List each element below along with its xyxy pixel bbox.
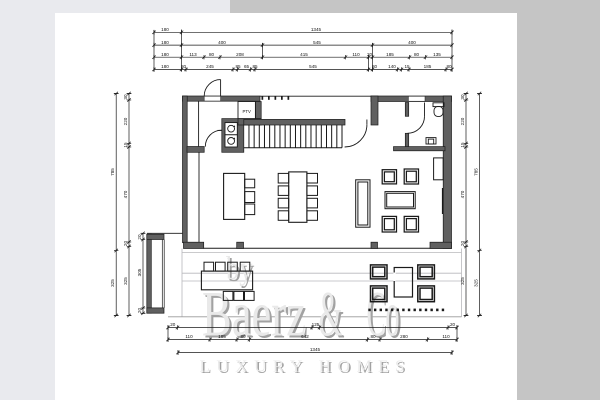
svg-text:85: 85	[235, 64, 241, 69]
svg-text:400: 400	[408, 40, 416, 45]
svg-text:80: 80	[209, 52, 215, 57]
svg-text:110: 110	[352, 52, 360, 57]
svg-text:80: 80	[372, 64, 378, 69]
svg-text:80: 80	[446, 64, 452, 69]
svg-text:80: 80	[370, 334, 376, 339]
svg-text:113: 113	[189, 52, 197, 57]
svg-text:15: 15	[123, 142, 128, 148]
svg-text:642: 642	[301, 334, 309, 339]
svg-text:80: 80	[240, 334, 246, 339]
svg-text:305: 305	[137, 268, 142, 276]
svg-text:415: 415	[300, 52, 308, 57]
svg-text:80: 80	[181, 64, 187, 69]
svg-text:785: 785	[110, 168, 115, 176]
svg-text:208: 208	[236, 52, 244, 57]
svg-text:20: 20	[450, 322, 456, 327]
svg-text:110: 110	[185, 334, 193, 339]
svg-text:20: 20	[137, 234, 142, 240]
svg-text:180: 180	[161, 27, 169, 32]
svg-text:325: 325	[123, 277, 128, 285]
svg-text:280: 280	[400, 334, 408, 339]
svg-text:PTV: PTV	[243, 109, 251, 114]
svg-text:180: 180	[161, 40, 169, 45]
svg-text:30: 30	[460, 94, 465, 100]
svg-text:85: 85	[252, 64, 258, 69]
svg-text:185: 185	[386, 52, 394, 57]
svg-text:15: 15	[460, 142, 465, 148]
svg-text:20: 20	[170, 322, 176, 327]
svg-text:140: 140	[388, 64, 396, 69]
svg-text:470: 470	[123, 190, 128, 198]
svg-text:325: 325	[474, 279, 479, 287]
svg-text:470: 470	[460, 190, 465, 198]
svg-text:135: 135	[433, 52, 441, 57]
svg-text:20: 20	[137, 308, 142, 314]
svg-text:245: 245	[206, 64, 214, 69]
svg-text:180: 180	[161, 52, 169, 57]
svg-text:545: 545	[313, 40, 321, 45]
svg-text:185: 185	[424, 64, 432, 69]
svg-text:325: 325	[460, 277, 465, 285]
svg-text:110: 110	[442, 334, 450, 339]
svg-text:80: 80	[414, 52, 420, 57]
svg-text:65: 65	[244, 64, 250, 69]
svg-text:545: 545	[309, 64, 317, 69]
svg-text:15: 15	[404, 64, 410, 69]
svg-text:20: 20	[367, 52, 373, 57]
svg-text:400: 400	[218, 40, 226, 45]
svg-text:125: 125	[312, 322, 320, 327]
svg-text:220: 220	[460, 117, 465, 125]
svg-text:220: 220	[123, 117, 128, 125]
svg-text:785: 785	[474, 168, 479, 176]
svg-text:20: 20	[460, 241, 465, 247]
svg-text:185: 185	[218, 334, 226, 339]
svg-text:1345: 1345	[311, 27, 322, 32]
svg-text:180: 180	[161, 64, 169, 69]
svg-text:1345: 1345	[310, 347, 321, 352]
svg-text:30: 30	[123, 94, 128, 100]
svg-text:325: 325	[110, 279, 115, 287]
svg-text:20: 20	[123, 241, 128, 247]
